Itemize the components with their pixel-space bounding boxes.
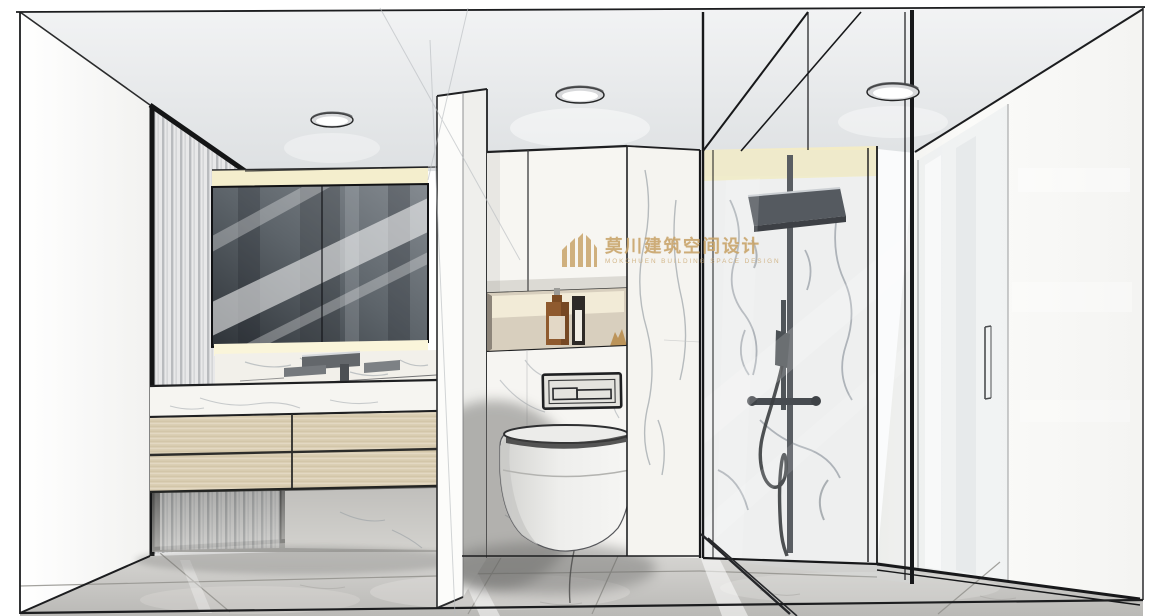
vanity-drawers [150,412,437,493]
display-niche [487,288,627,352]
marble-column [627,146,700,558]
vanity-countertop [150,380,437,418]
under-vanity-shadow [135,487,465,574]
sketch-scene [0,0,1150,616]
dark-bottle [572,296,585,345]
downlight-icon [311,113,353,127]
left-wall [20,12,150,613]
bathroom-sketch-rendering: 莫川建筑空间设计 MOKCHUEN BUILDING SPACE DESIGN [0,0,1150,616]
glass-door [918,104,1008,585]
downlight-icon [556,87,604,103]
shower-glass [703,150,910,583]
mirror-cabinet [212,167,428,356]
storage-cabinet [487,146,627,293]
downlight-icon [867,83,919,100]
flush-plate [543,373,622,408]
